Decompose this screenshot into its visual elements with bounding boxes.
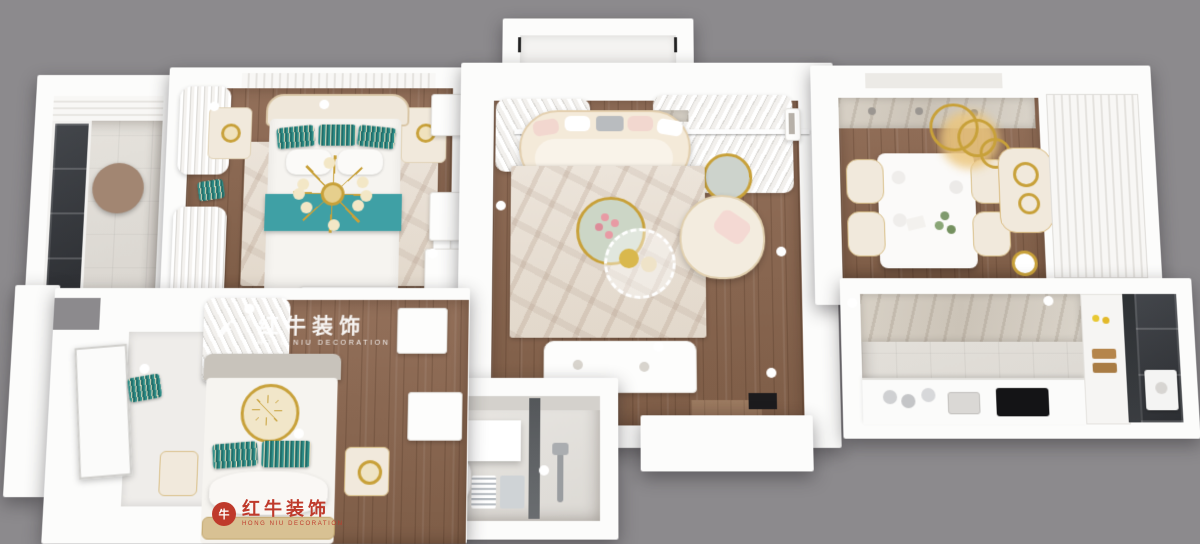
wall-notch	[53, 298, 101, 330]
registered-mark: ®	[246, 314, 252, 323]
bull-logo-icon	[211, 316, 240, 342]
menu-card	[906, 215, 926, 231]
kitchen-counter-bottom	[862, 378, 1086, 425]
nightstand-left	[207, 107, 252, 159]
sofa-pillow	[532, 118, 560, 137]
wall-clock-icon	[1011, 251, 1038, 277]
chandelier-center	[320, 182, 344, 205]
bar-cabinet	[997, 148, 1054, 233]
sofa-pillow	[596, 116, 624, 131]
gold-clock-decor	[357, 460, 382, 485]
room-door	[74, 344, 132, 480]
footer-watermark-zh: 红牛装饰	[242, 500, 344, 518]
hall-closet-c	[397, 308, 448, 354]
cream-plate	[641, 256, 657, 272]
sofa-pillow	[628, 116, 654, 131]
kitchen	[840, 278, 1200, 439]
armchair	[679, 195, 766, 279]
teal-striped-pillow	[261, 441, 311, 468]
wardrobe-shutter	[1046, 94, 1148, 278]
windowseat-teal-pillow	[197, 179, 225, 202]
dining-chair	[846, 159, 885, 204]
hall-closet-d	[407, 392, 462, 441]
frame-art	[789, 113, 795, 134]
doorway-opening	[748, 393, 777, 409]
dining-room	[810, 66, 1164, 305]
wall-frame	[785, 108, 801, 141]
teal-striped-pillow	[212, 441, 258, 469]
nightstand-left	[158, 451, 199, 496]
floor-watermark: ® 红牛装饰 HONG NIU DECORATION	[211, 316, 391, 347]
shower-glass-panel	[528, 398, 540, 519]
gold-plate	[619, 249, 639, 269]
dining-chair	[847, 211, 886, 256]
sofa-pillow	[656, 118, 684, 137]
teal-pillow	[357, 125, 397, 150]
bar-decor-ring	[1018, 193, 1041, 214]
cooktop	[996, 388, 1050, 416]
plant-decor	[940, 211, 949, 220]
kitchen-counter-top	[860, 294, 1082, 342]
window-slit	[518, 37, 521, 52]
brass-pipes	[1092, 349, 1117, 359]
brand-seal-icon: 牛	[212, 502, 236, 526]
floor-watermark-en: HONG NIU DECORATION	[257, 340, 390, 347]
teal-pillow	[276, 125, 315, 150]
apartment-render-scene: ® 红牛装饰 HONG NIU DECORATION	[0, 0, 1200, 544]
armchair-pillow	[711, 207, 753, 247]
footer-watermark-en: HONG NIU DECORATION	[242, 521, 344, 527]
storage-baskets	[471, 476, 496, 509]
kitchen-balcony-window	[1134, 294, 1183, 422]
plates	[891, 171, 905, 185]
floor-watermark-zh: 红牛装饰	[257, 316, 391, 337]
balcony-ceiling-slats	[53, 96, 164, 121]
console-decor	[573, 360, 583, 370]
kitchen-sink	[947, 392, 980, 414]
sofa-pillow	[565, 116, 591, 131]
cookware	[883, 390, 898, 404]
teal-pillow	[318, 125, 356, 146]
sideboard-decor	[868, 107, 876, 115]
washing-machine	[1144, 370, 1179, 410]
master-top-panel	[241, 73, 435, 88]
table-lamp-icon	[221, 124, 241, 143]
footer-watermark: 牛 红牛装饰 HONG NIU DECORATION	[212, 500, 344, 527]
stove-knobs	[1092, 315, 1099, 322]
washer-door	[1155, 382, 1168, 394]
floorplan-3d: ® 红牛装饰 HONG NIU DECORATION	[0, 11, 1200, 544]
flower-decor	[601, 213, 609, 221]
entry-step	[640, 415, 813, 471]
bed-headboard	[204, 354, 342, 380]
lamp-spokes	[251, 395, 282, 425]
balcony-left-room	[24, 75, 183, 318]
dining-window	[865, 73, 1003, 88]
window-slit	[674, 37, 677, 52]
lace-coffee-table	[604, 228, 676, 299]
nightstand-right	[344, 447, 390, 496]
shower-head	[552, 443, 568, 455]
bar-decor-ring	[1013, 162, 1040, 187]
shower-fixture	[557, 453, 563, 502]
